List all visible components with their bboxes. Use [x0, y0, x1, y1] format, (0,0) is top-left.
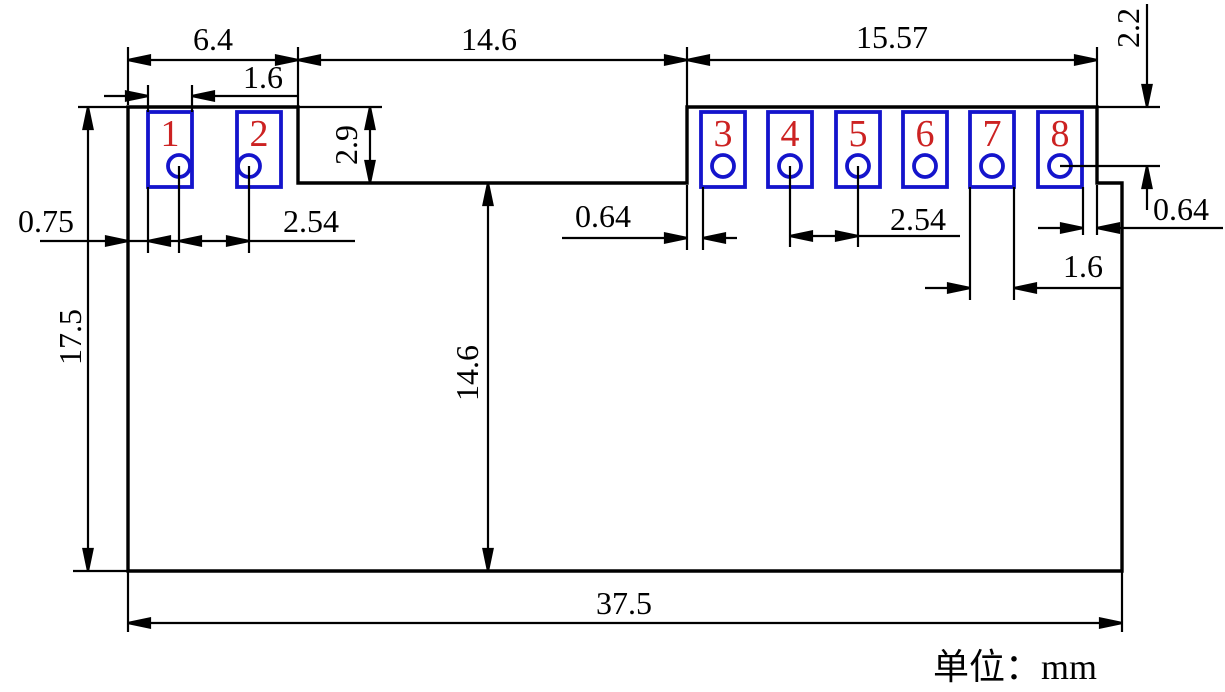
dim-label: 37.5	[596, 585, 652, 621]
unit-note: 单位：mm	[933, 647, 1097, 687]
dim-label: 0.64	[575, 198, 631, 234]
arrowhead	[227, 236, 249, 245]
dim-label: 14.6	[461, 21, 517, 57]
pad-6: 6	[903, 112, 947, 187]
pin-hole	[981, 155, 1003, 177]
dim-pitch-left: 2.54	[179, 203, 339, 246]
arrowhead	[665, 233, 687, 242]
pad-8: 8	[1038, 112, 1082, 187]
arrowhead	[1014, 283, 1036, 292]
pad-number: 2	[250, 113, 269, 155]
dim-overall-width: 37.5	[128, 585, 1122, 628]
dim-label: 2.54	[283, 203, 339, 239]
drawing-canvas: 1 2 3 4 5 6 7	[0, 0, 1225, 692]
dim-label: 2.9	[328, 125, 364, 165]
arrowhead	[483, 549, 492, 571]
arrowhead	[83, 549, 92, 571]
pad-number: 4	[781, 113, 800, 155]
arrowhead	[948, 283, 970, 292]
pad-number: 3	[714, 113, 733, 155]
arrowhead	[687, 55, 709, 64]
pads: 1 2 3 4 5 6 7	[148, 112, 1082, 187]
dim-edge-to-pad3: 0.64	[562, 198, 737, 243]
pad-number: 7	[983, 113, 1002, 155]
dim-label: 1.6	[1063, 248, 1103, 284]
dim-label: 15.57	[856, 19, 928, 55]
pad-number: 1	[161, 113, 180, 155]
arrowhead	[1061, 223, 1083, 232]
pad-3: 3	[701, 112, 745, 187]
pcb-dimension-drawing: 1 2 3 4 5 6 7	[0, 0, 1225, 692]
arrowhead	[1075, 55, 1097, 64]
dim-notch-depth: 2.9	[328, 107, 375, 183]
dim-notch-width-top: 14.6	[298, 21, 687, 65]
dim-label: 2.54	[890, 201, 946, 237]
pad-1: 1	[148, 112, 192, 187]
dim-overall-height: 17.5	[52, 107, 93, 571]
pad-7: 7	[970, 112, 1014, 187]
pad-number: 8	[1051, 113, 1070, 155]
arrowhead	[192, 91, 214, 100]
dimensions: 6.4 14.6 15.57 1.6 2.2	[18, 4, 1223, 628]
pin-hole	[914, 155, 936, 177]
arrowhead	[128, 55, 150, 64]
arrowhead	[1100, 618, 1122, 627]
arrowhead	[365, 107, 374, 129]
arrowhead	[106, 236, 128, 245]
pin-hole	[712, 155, 734, 177]
pad-2: 2	[237, 112, 281, 187]
module-outline	[128, 107, 1122, 571]
arrowhead	[790, 231, 812, 240]
dim-right-tab-width: 15.57	[687, 19, 1097, 65]
module-outline-path	[128, 107, 1122, 571]
arrowhead	[179, 236, 201, 245]
arrowhead	[483, 183, 492, 205]
arrowhead	[298, 55, 320, 64]
arrowhead	[365, 161, 374, 183]
dim-label: 2.2	[1110, 8, 1146, 48]
arrowhead	[83, 107, 92, 129]
dim-notch-to-bottom: 14.6	[449, 183, 493, 571]
dim-pad7-width: 1.6	[925, 248, 1122, 293]
dim-label: 17.5	[52, 309, 88, 365]
dim-label: 0.64	[1153, 191, 1209, 227]
arrowhead	[1142, 85, 1151, 107]
dim-pitch-right: 2.54	[790, 201, 960, 241]
dim-label: 14.6	[449, 345, 485, 401]
dim-label: 0.75	[18, 203, 74, 239]
arrowhead	[665, 55, 687, 64]
arrowhead	[128, 618, 150, 627]
pad-number: 6	[916, 113, 935, 155]
arrowhead	[148, 236, 170, 245]
dim-pad8-to-edge: 0.64	[1038, 191, 1223, 233]
dim-label: 6.4	[193, 21, 233, 57]
arrowhead	[1097, 223, 1119, 232]
arrowhead	[836, 231, 858, 240]
dim-pad1-width: 1.6	[104, 59, 298, 101]
dim-label: 1.6	[243, 59, 283, 95]
arrowhead	[703, 233, 725, 242]
arrowhead	[126, 91, 148, 100]
arrowhead	[1142, 166, 1151, 188]
pad-number: 5	[849, 113, 868, 155]
